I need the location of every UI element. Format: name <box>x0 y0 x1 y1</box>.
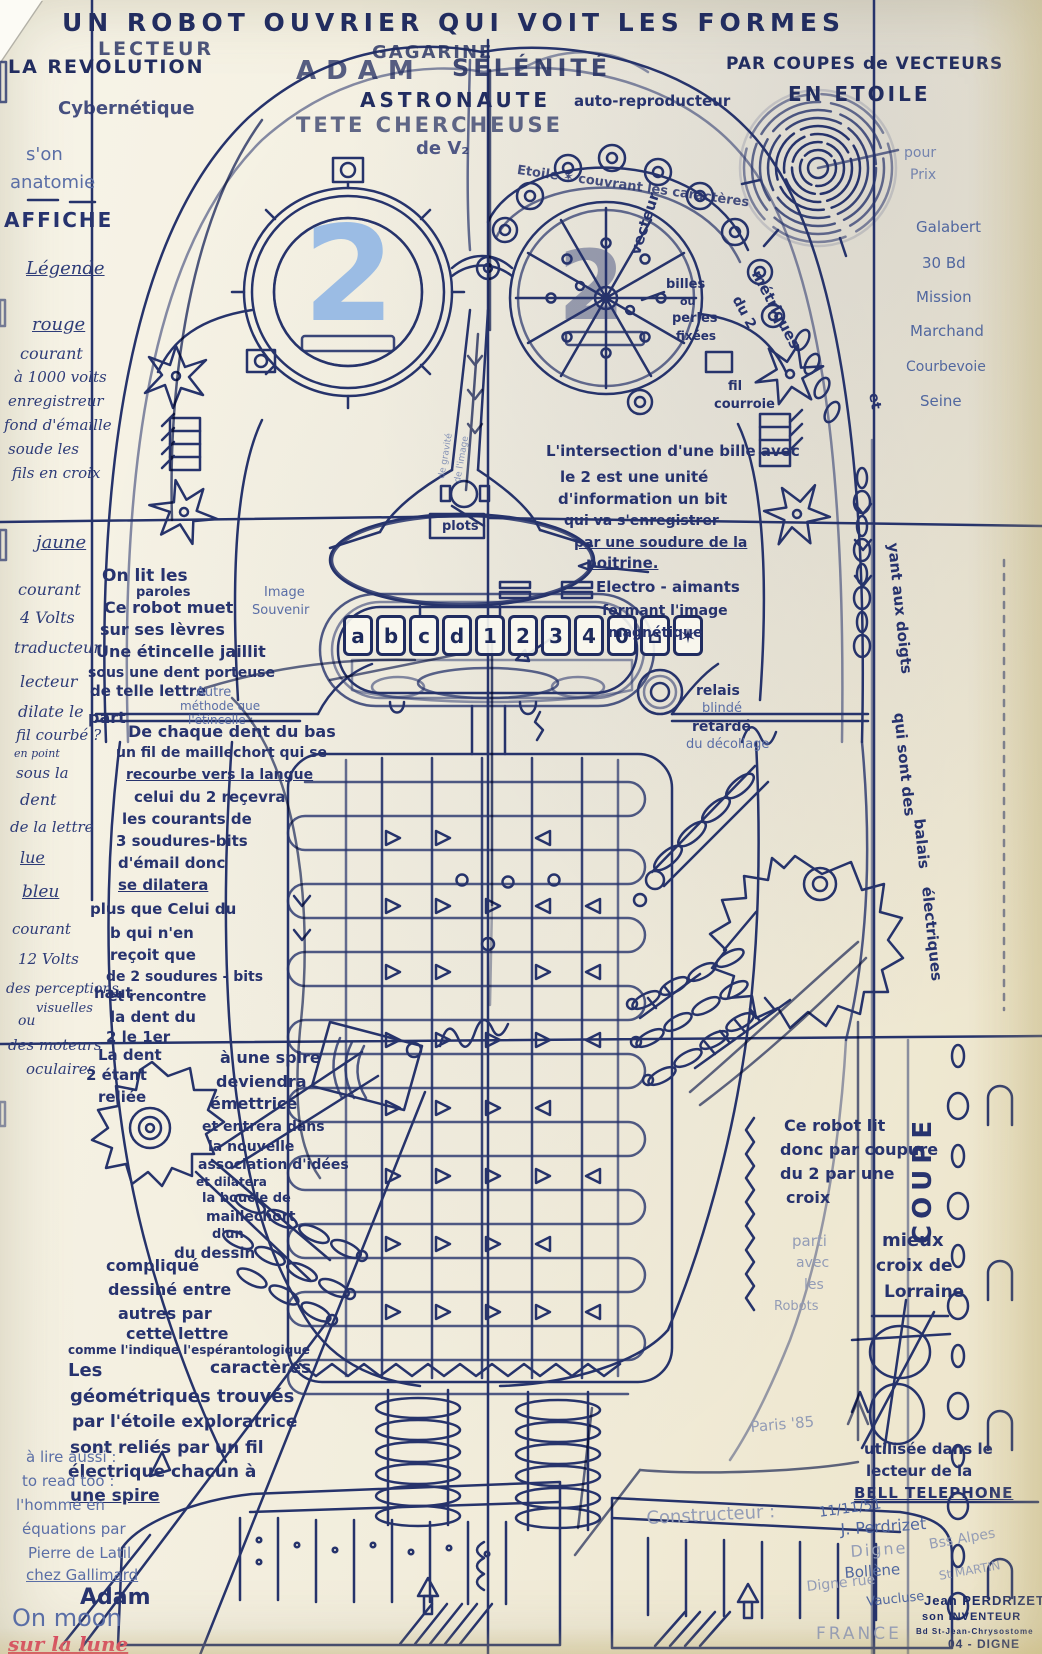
label-paris-85: Paris '85 <box>750 1414 815 1435</box>
label-12-volts: 12 Volts <box>18 952 79 968</box>
label-d-information: d'information un bit <box>558 492 727 508</box>
label-metriques: métriques <box>748 268 802 351</box>
label-parti: parti <box>792 1234 827 1250</box>
label-balais: balais <box>910 818 931 870</box>
label-mission: Mission <box>916 290 972 306</box>
label-soude-les: soude les <box>8 442 79 458</box>
label-j-perdrizet: J. Perdrizet <box>840 1516 927 1539</box>
tooth-cell: 2 <box>508 615 538 656</box>
label-electro-aimants: Electro - aimants <box>596 580 740 596</box>
label-par-l-etoile: par l'étoile exploratrice <box>72 1414 297 1432</box>
label-lecteur-de-la: lecteur de la <box>866 1464 972 1480</box>
label-enregistreur: enregistreur <box>8 394 104 410</box>
label-image: Image <box>264 586 305 600</box>
label-cette-lettre: cette lettre <box>126 1326 228 1343</box>
label-de-la-lettre: de la lettre <box>10 820 94 836</box>
label-seine: Seine <box>920 394 962 410</box>
label-affiche: AFFICHE <box>4 210 113 231</box>
label-selenite: SÉLÉNITÉ <box>452 56 611 81</box>
label-les-courants: les courants de <box>122 812 252 828</box>
label-dessine-entre: dessiné entre <box>108 1282 231 1299</box>
label-plots: plots <box>442 520 479 534</box>
annotation-layer: 2 2 a b c d 1 2 3 4 0 ⌂ ✶ UN ROBOT OUVRI… <box>0 0 1042 1654</box>
label-complique: compliqué <box>106 1258 199 1275</box>
label-avec: avec <box>796 1256 829 1271</box>
label-la-revolution: LA REVOLUTION <box>8 58 205 78</box>
tooth-cell: b <box>376 615 406 656</box>
label-blinde: blindé <box>702 702 742 716</box>
label-de-chaque-dent: De chaque dent du bas <box>128 724 336 741</box>
label-le-2-est: le 2 est une unité <box>560 470 708 486</box>
label-30-bd: 30 Bd <box>922 256 966 272</box>
label-yant-aux-doigts: yant aux doigts <box>884 542 913 675</box>
label-de-gravite: de gravité <box>438 433 455 480</box>
label-adam: ADAM <box>296 58 424 85</box>
tooth-cell: 4 <box>574 615 604 656</box>
label-equations-par: équations par <box>22 1522 126 1538</box>
right-eye-digit: 2 <box>558 236 625 337</box>
left-eye-digit: 2 <box>303 206 395 345</box>
label-et-rencontre: et rencontre <box>108 990 206 1005</box>
label-geometriques: géométriques trouvés <box>70 1388 294 1407</box>
label-pour: pour <box>904 146 936 161</box>
label-ce-robot-lit: Ce robot lit <box>784 1118 885 1135</box>
label-emettrice: émettrice <box>210 1096 297 1113</box>
paper-edge-bottom <box>0 1628 1042 1654</box>
label-sur-ses-levres: sur ses lèvres <box>100 622 225 639</box>
label-fils-en-croix: fils en croix <box>12 466 100 482</box>
label-se-dilatera: se dilatera <box>118 878 208 894</box>
label-vaucluse: Vaucluse <box>866 1590 925 1610</box>
label-prix: Prix <box>910 168 936 183</box>
label-a-lire-aussi: à lire aussi : <box>26 1450 116 1466</box>
label-astronaute: ASTRONAUTE <box>360 90 551 111</box>
label-billes: billes <box>666 278 705 292</box>
label-digne-1: Digne <box>850 1540 908 1561</box>
label-vecteur: vecteur <box>628 191 663 257</box>
label-methode-que: méthode que <box>180 700 260 713</box>
tooth-cell: 3 <box>541 615 571 656</box>
label-et-entrera: et entrera dans <box>202 1120 325 1135</box>
label-du-2-metriques: du 2 <box>729 294 758 331</box>
label-de-telle-lettre: de telle lettre <box>90 684 206 700</box>
label-oculaires: oculaires <box>26 1062 95 1078</box>
label-dent: dent <box>20 792 56 809</box>
label-magnetique: magnétique <box>608 626 703 641</box>
label-la-dent-du: la dent du <box>110 1010 196 1026</box>
label-souvenir: Souvenir <box>252 604 309 618</box>
label-maillechort: maillechort <box>206 1210 295 1225</box>
label-courant-jaune: courant <box>18 582 81 599</box>
label-recourbe: recourbe vers la langue <box>126 768 313 783</box>
label-par-coupes: PAR COUPES de VECTEURS <box>726 56 1003 74</box>
poster-page: 2 2 a b c d 1 2 3 4 0 ⌂ ✶ UN ROBOT OUVRI… <box>0 0 1042 1654</box>
label-la-dent: La dent <box>98 1048 162 1064</box>
label-d-un: d'un <box>212 1228 244 1242</box>
label-coupe: COUPE <box>910 1115 937 1244</box>
label-tete-chercheuse: TETE CHERCHEUSE <box>296 114 563 136</box>
label-recoit-que: reçoit que <box>110 948 196 964</box>
label-les: Les <box>68 1362 102 1381</box>
label-ou-2: ou <box>680 296 695 308</box>
label-courant-rouge: courant <box>20 346 83 363</box>
label-ou: ou <box>18 1014 35 1029</box>
label-fil-courbe: fil courbé ? <box>16 728 101 744</box>
label-fil-3: fil <box>728 380 742 394</box>
label-constructeur: Constructeur : <box>646 1503 776 1529</box>
label-intersection: L'intersection d'une bille avec <box>546 444 800 460</box>
label-qui-sont-des: qui sont des <box>890 712 917 817</box>
label-lorraine: Lorraine <box>884 1284 964 1302</box>
label-2-etant: 2 étant <box>86 1068 147 1084</box>
label-son: s'on <box>26 146 63 165</box>
label-qui-va: qui va s'enregistrer <box>564 514 719 529</box>
label-part: part <box>88 710 126 727</box>
label-par-une-soudure: par une soudure de la <box>574 536 747 551</box>
label-reliee: reliée <box>98 1090 146 1106</box>
label-2-le-1er: 2 le 1er <box>106 1030 170 1046</box>
label-comme-indique: comme l'indique l'espérantologique <box>68 1344 310 1357</box>
label-lue: lue <box>20 850 45 867</box>
label-association: association d'idées <box>198 1158 349 1173</box>
label-formant-l-image: formant l'image <box>602 604 728 619</box>
label-les-pencil: les <box>804 1278 824 1293</box>
label-deviendra: deviendra <box>216 1074 307 1091</box>
label-3-soudures: 3 soudures-bits <box>116 834 248 850</box>
label-legende: Légende <box>26 260 105 279</box>
label-autre: Autre <box>196 686 231 700</box>
label-croix-de: croix de <box>876 1258 953 1276</box>
label-retarde: retardé <box>692 720 751 735</box>
label-en-point: en point <box>14 748 60 760</box>
label-de-l-image: de l'image <box>454 436 471 484</box>
label-fond-emaille: fond d'émaille <box>4 418 112 434</box>
label-croix: croix <box>786 1190 830 1207</box>
label-et-dilatera: et dilatera <box>196 1176 267 1189</box>
label-robots: Robots <box>774 1300 818 1314</box>
label-cybernetique: Cybernétique <box>58 100 195 119</box>
label-celui-du-2: celui du 2 reçevra <box>134 790 285 806</box>
label-anatomie: anatomie <box>10 174 95 193</box>
label-dilate-le: dilate le <box>18 704 84 721</box>
label-poitrine: poitrine. <box>586 556 658 572</box>
label-d-email: d'émail donc <box>118 856 225 872</box>
label-b-qui-nen: b qui n'en <box>110 926 194 942</box>
tooth-cell: c <box>409 615 439 656</box>
label-un-fil: un fil de maillechort qui se <box>116 746 327 761</box>
label-a-1000-volts: à 1000 volts <box>14 370 107 386</box>
label-chez-gallimard: chez Gallimard <box>26 1568 138 1584</box>
label-courroie: courroie <box>714 398 775 412</box>
label-on-lit-les: On lit les <box>102 568 188 586</box>
label-relais: relais <box>696 684 740 699</box>
label-lecteur-2: lecteur <box>20 674 77 691</box>
label-visuelles: visuelles <box>36 1002 93 1016</box>
label-electriques: électriques <box>918 886 944 982</box>
label-et-vertical: et <box>866 392 883 410</box>
label-sous-une-dent: sous une dent porteuse <box>88 666 275 681</box>
label-perles: perles <box>672 312 718 326</box>
label-jaune: jaune <box>36 534 86 553</box>
label-la-boucle-de: la boucle de <box>202 1192 291 1206</box>
label-sous-la: sous la <box>16 766 69 782</box>
label-l-homme-en: l'homme en <box>16 1498 105 1514</box>
label-fixees: fixées <box>676 330 716 343</box>
label-mieux: mieux <box>882 1232 944 1251</box>
label-auto-reproducteur: auto-reproducteur <box>574 94 730 110</box>
label-pierre-de-latil: Pierre de Latil <box>28 1546 131 1562</box>
label-bleu: bleu <box>22 884 59 902</box>
label-courant-bleu: courant <box>12 922 71 938</box>
label-du-2-par-une: du 2 par une <box>780 1166 894 1183</box>
tooth-cell: a <box>343 615 373 656</box>
label-en-etoile: EN ETOILE <box>788 84 931 105</box>
label-autres-par: autres par <box>118 1306 212 1323</box>
label-de-v2: de V₂ <box>416 140 469 159</box>
label-etoile-couvrant: Etoile ✶ couvrant les caractères <box>516 164 750 210</box>
paper-edge-right <box>972 0 1042 1654</box>
label-4-volts: 4 Volts <box>20 610 75 627</box>
tooth-cell: 1 <box>475 615 505 656</box>
label-de-2-soudures: de 2 soudures - bits <box>106 970 263 985</box>
label-des-moteurs: des moteurs <box>8 1038 102 1054</box>
label-to-read-too: to read too : <box>22 1474 114 1490</box>
label-ce-robot-muet: Ce robot muet <box>104 600 233 617</box>
label-a-une-spire: à une spire <box>220 1050 321 1067</box>
label-main-title: UN ROBOT OUVRIER QUI VOIT LES FORMES <box>62 10 845 36</box>
label-caracteres: caractères <box>210 1360 311 1378</box>
label-digne-rue: Digne rue <box>806 1573 876 1595</box>
label-une-etincelle: Une étincelle jaillit <box>96 644 266 661</box>
tooth-cell: d <box>442 615 472 656</box>
label-du-decollage: du décollage <box>686 738 769 752</box>
label-plus-que: plus que Celui du <box>90 902 236 918</box>
label-rouge: rouge <box>32 316 85 335</box>
label-la-nouvelle: la nouvelle <box>208 1140 294 1155</box>
label-traducteur: traducteur <box>14 640 101 657</box>
